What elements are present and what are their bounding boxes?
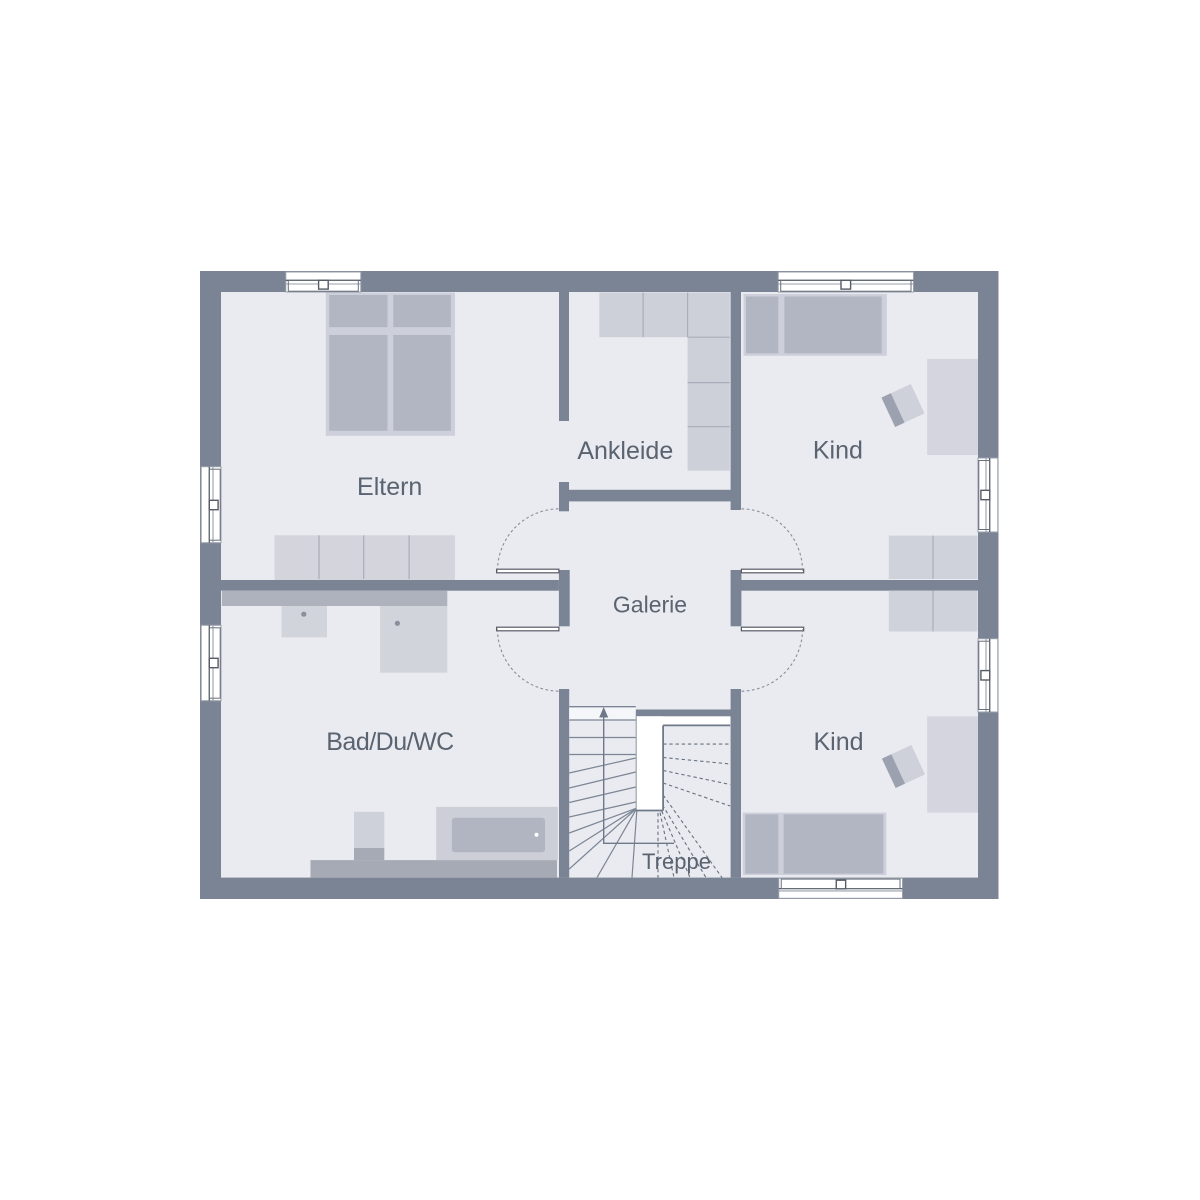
svg-text:Kind: Kind [813, 437, 863, 465]
svg-text:Ankleide: Ankleide [577, 437, 673, 465]
svg-text:Kind: Kind [813, 728, 863, 756]
svg-text:Galerie: Galerie [613, 592, 687, 618]
svg-text:Treppe: Treppe [642, 849, 711, 874]
svg-text:Bad/Du/WC: Bad/Du/WC [326, 728, 454, 756]
svg-text:Eltern: Eltern [357, 473, 422, 501]
